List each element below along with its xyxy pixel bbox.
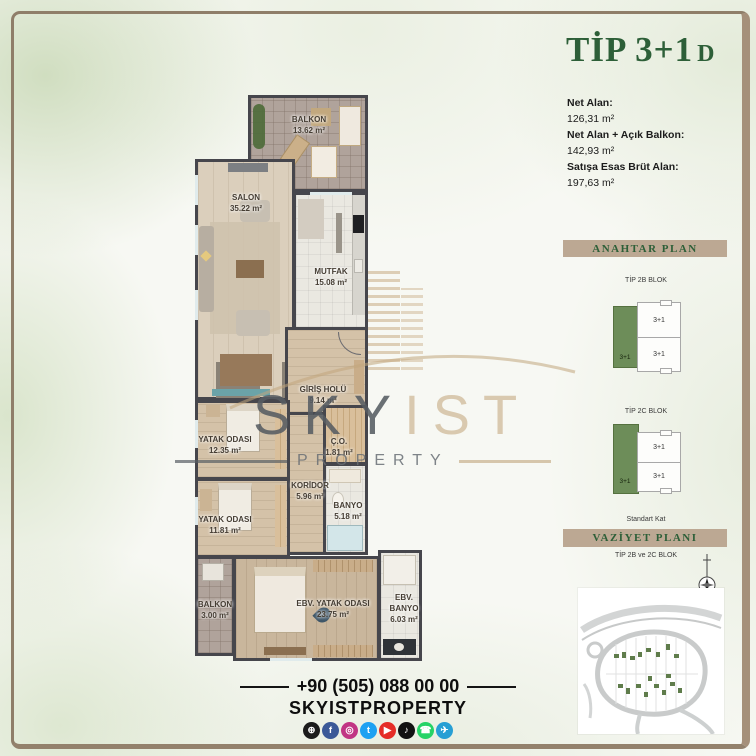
website-icon[interactable]: ⊕ xyxy=(303,722,320,739)
footer: +90 (505) 088 00 00 SKYISTPROPERTY ⊕ f ◎… xyxy=(240,676,516,739)
area-label: Satışa Esas Brüt Alan: xyxy=(567,159,732,175)
area-value: 126,31 m² xyxy=(567,111,732,127)
site-plan-map xyxy=(578,588,724,734)
room-label-master-bathroom: EBV. BANYO6.03 m² xyxy=(384,593,424,625)
window xyxy=(195,290,198,320)
area-label: Net Alan: xyxy=(567,95,732,111)
nightstand xyxy=(206,405,220,417)
room-label-kitchen: MUTFAK15.08 m² xyxy=(300,267,362,289)
anahtar-plan-header: ANAHTAR PLAN xyxy=(563,240,727,257)
key-plan-block-2c: 3+1 3+1 3+1 xyxy=(611,424,681,498)
kitchen-counter xyxy=(352,195,365,315)
highlighted-unit-label: 3+1 xyxy=(613,354,637,361)
wardrobe xyxy=(313,560,373,572)
highlighted-unit-label: 3+1 xyxy=(613,478,637,485)
logo-line xyxy=(459,460,551,463)
title-suffix: D xyxy=(697,41,715,67)
armchair xyxy=(236,310,270,336)
shoe-cabinet xyxy=(354,360,364,394)
window xyxy=(195,175,198,205)
brochure-page: TİP 3+1D Net Alan: 126,31 m² Net Alan + … xyxy=(0,0,756,756)
daybed xyxy=(339,106,361,146)
wardrobe xyxy=(313,645,373,657)
area-value: 197,63 m² xyxy=(567,175,732,191)
room-label-living: SALON35.22 m² xyxy=(215,193,277,215)
whatsapp-icon[interactable]: ☎ xyxy=(417,722,434,739)
cooktop xyxy=(353,215,364,233)
area-info: Net Alan: 126,31 m² Net Alan + Açık Balk… xyxy=(567,95,732,191)
title-main: TİP 3+1 xyxy=(566,30,693,69)
tiktok-icon[interactable]: ♪ xyxy=(398,722,415,739)
room-label-balcony-bottom: BALKON3.00 m² xyxy=(194,600,236,622)
entry-door-arc xyxy=(338,332,361,355)
unit-label: 3+1 xyxy=(638,462,680,491)
telegram-icon[interactable]: ✈ xyxy=(436,722,453,739)
bathtub xyxy=(327,525,363,551)
bathroom-sink xyxy=(329,469,361,483)
room-label-bedroom-2: YATAK ODASI11.81 m² xyxy=(194,515,256,537)
youtube-icon[interactable]: ▶ xyxy=(379,722,396,739)
block-outline: 3+1 3+1 xyxy=(637,302,681,372)
divider-line xyxy=(240,686,289,688)
shower xyxy=(383,555,416,585)
facebook-icon[interactable]: f xyxy=(322,722,339,739)
block-2c-label: TİP 2C BLOK xyxy=(560,408,732,415)
twitter-icon[interactable]: t xyxy=(360,722,377,739)
floor-plan: BALKON13.62 m² SALON35.22 m² MUTFAK15.08… xyxy=(190,95,423,673)
room-label-corridor: KORİDOR5.96 m² xyxy=(288,481,332,503)
divider-line xyxy=(467,686,516,688)
block-outline: 3+1 3+1 xyxy=(637,432,681,492)
area-value: 142,93 m² xyxy=(567,143,732,159)
unit-label: 3+1 xyxy=(638,433,680,463)
social-icons-row: ⊕ f ◎ t ▶ ♪ ☎ ✈ xyxy=(240,722,516,739)
coffee-table xyxy=(236,260,264,278)
page-title: TİP 3+1D xyxy=(566,30,715,70)
room-label-bedroom-1: YATAK ODASI12.35 m² xyxy=(194,435,256,457)
room-label-bathroom: BANYO5.18 m² xyxy=(327,501,369,523)
unit-label: 3+1 xyxy=(638,303,680,338)
standart-kat-label: Standart Kat xyxy=(560,516,732,523)
outdoor-bed xyxy=(311,146,337,178)
instagram-icon[interactable]: ◎ xyxy=(341,722,358,739)
room-label-dressing: Ç.O.1.81 m² xyxy=(318,437,360,459)
plant xyxy=(253,104,265,149)
unit-label: 3+1 xyxy=(638,337,680,371)
window xyxy=(310,192,352,195)
room-kitchen xyxy=(293,192,368,330)
window xyxy=(270,658,312,661)
washing-machine xyxy=(202,563,224,581)
block-2b-label: TİP 2B BLOK xyxy=(560,277,732,284)
phone-number: +90 (505) 088 00 00 xyxy=(297,676,460,697)
wardrobe xyxy=(275,485,286,547)
area-label: Net Alan + Açık Balkon: xyxy=(567,127,732,143)
wardrobe xyxy=(275,409,286,469)
dining-table xyxy=(220,354,272,386)
room-label-balcony-top: BALKON13.62 m² xyxy=(278,115,340,137)
bench xyxy=(264,647,306,655)
sofa xyxy=(199,226,214,312)
brand-handle: SKYISTPROPERTY xyxy=(240,698,516,719)
key-plan-block-2b: 3+1 3+1 3+1 xyxy=(611,300,681,374)
phone-row: +90 (505) 088 00 00 xyxy=(240,676,516,697)
basin xyxy=(394,643,404,651)
room-label-master-bedroom: EBV. YATAK ODASI23.75 m² xyxy=(287,599,379,621)
vaziyet-plani-header: VAZİYET PLANI xyxy=(563,529,727,547)
kitchen-table xyxy=(298,199,324,239)
room-label-entry-hall: GİRİŞ HOLÜ9.14 m² xyxy=(291,385,355,407)
sideboard xyxy=(212,389,270,396)
window xyxy=(195,225,198,255)
dresser xyxy=(200,489,212,511)
tv-unit xyxy=(228,163,268,172)
